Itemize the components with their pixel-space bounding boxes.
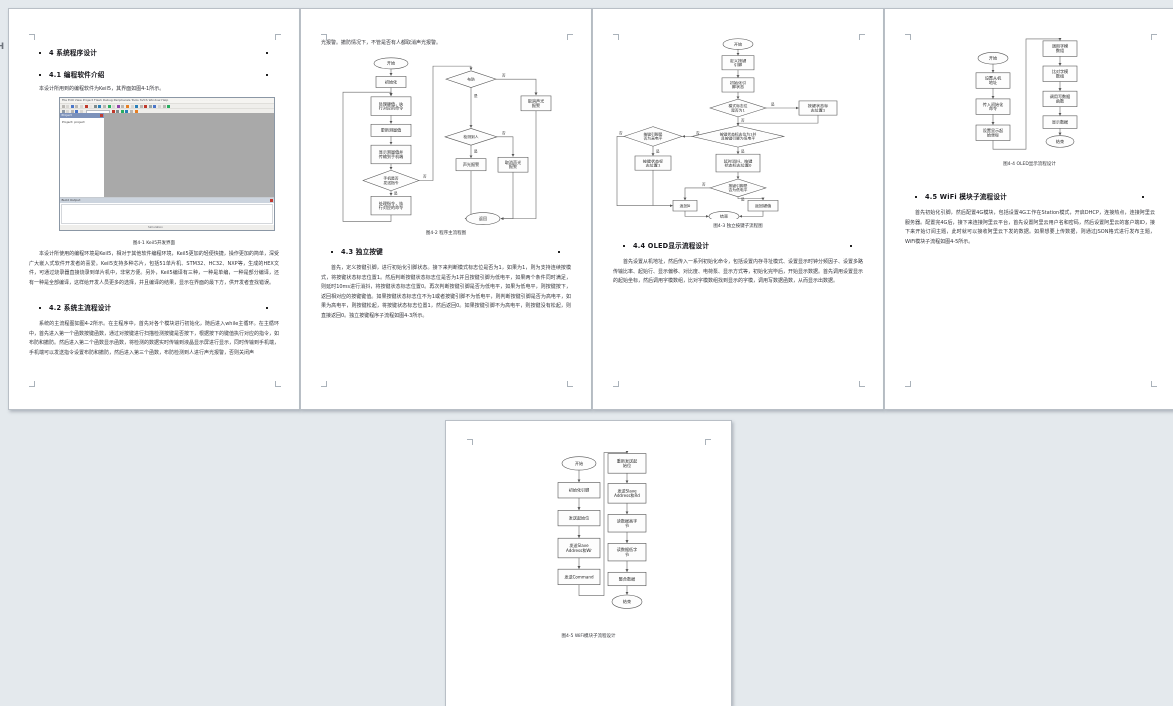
paragraph[interactable]: 首先，定义按键引脚，进行初始化引脚状态。接下来判断模式标志位是否为1，如果为1，… <box>321 264 571 342</box>
paragraph[interactable]: 首先初始化引脚，然后配置4G模块，包括设置4G工作在Station模式，开启DH… <box>905 209 1155 259</box>
format-mark <box>850 245 852 247</box>
format-mark <box>1142 196 1144 198</box>
fc-node-label: 手机是否 <box>383 176 399 181</box>
figure-caption-4-1: 图4-1 Keil5开发界面 <box>9 240 299 246</box>
format-mark <box>266 307 268 309</box>
fc-edge-label: 否 <box>741 119 745 123</box>
fc-node-label: 否为高电平 <box>644 136 663 141</box>
keil-project-tree-item: Project: project <box>60 118 104 124</box>
paragraph[interactable]: 系统的主流程图如图4-2所示。在主程序中，首先对各个模块进行初始化，随后进入wh… <box>29 320 279 379</box>
fc-node-label: 行对应的命令 <box>379 205 404 210</box>
fc-node-label: 始位 <box>623 462 631 468</box>
fc-node-label: Address和Rd <box>614 492 640 498</box>
fc-node-label: 整合数据 <box>619 575 635 581</box>
figure-caption-4-2: 图4-2 程序主流程图 <box>301 230 591 236</box>
format-mark <box>266 74 268 76</box>
fc-edge-label: 否 <box>502 73 506 77</box>
fc-edge <box>501 172 513 218</box>
figure-caption-4-5: 图4-5 WiFi模块子流程设计 <box>446 633 731 639</box>
fc-node-label: 脚状态 <box>732 84 744 89</box>
fc-edge <box>685 211 709 216</box>
fc-node-label: 报警 <box>532 103 540 108</box>
heading-4[interactable]: 4 系统程序设计 <box>49 47 97 57</box>
fc-node-label: 开始 <box>989 55 997 61</box>
fc-edge-label: 是 <box>771 102 775 107</box>
fc-node-label: 开始 <box>734 42 742 47</box>
fc-node-label: 开始 <box>575 460 584 466</box>
figure-wifi-flowchart[interactable]: 开始初始化引脚发送起始位发送SlaveAddress和Wr发送Command重新… <box>539 451 669 611</box>
fc-edge <box>617 136 673 205</box>
close-icon <box>100 114 103 117</box>
page-2: 光报警。撤防情况下，不管是否有人都取消声光报警。 是否是否是否开始初始化处理键值… <box>300 8 592 410</box>
figure-caption-4-4: 图4-4 OLED显示流程设计 <box>885 161 1173 167</box>
fc-edge-label: 否 <box>502 131 506 135</box>
fc-node-label: Address和Wr <box>566 547 592 553</box>
fc-edge <box>738 115 818 123</box>
heading-4-4[interactable]: 4.4 OLED显示流程设计 <box>633 240 709 250</box>
fc-edge-label: 是 <box>474 93 478 98</box>
fc-node-label: 更新测量值 <box>381 128 401 133</box>
fc-edge-label: 否 <box>423 175 427 179</box>
fc-edge <box>465 171 471 219</box>
flowchart-svg: 是否否是是否是否开始定义按键引脚初始化引脚状态模式标志位是否为1按键状态标志位置… <box>613 37 863 219</box>
fc-node-label: 且按键引脚为低电平 <box>721 136 756 141</box>
heading-4-3[interactable]: 4.3 独立按键 <box>341 246 383 256</box>
fc-node-label: 初始化 <box>385 79 397 84</box>
fc-node-label: 始坐标 <box>987 131 999 137</box>
figure-main-flowchart[interactable]: 是否是否是否开始初始化处理键值，执行对应的命令更新测量值显示测量值并传输到手机端… <box>321 55 571 227</box>
keil-project-title: Project <box>62 113 72 117</box>
fc-node-label: 发送指令 <box>383 180 399 185</box>
keil-editor-area <box>104 113 274 198</box>
fc-node-label: 命令 <box>989 105 997 111</box>
keil-ide-screenshot[interactable]: File Edit View Project Flash Debug Perip… <box>59 97 275 231</box>
page-3: 是否否是是否是否开始定义按键引脚初始化引脚状态模式标志位是否为1按键状态标志位置… <box>592 8 884 410</box>
fc-node-label: 按键引脚是 <box>729 183 748 188</box>
fc-node-label: 发送Command <box>564 573 594 579</box>
fc-node-label: 模式标志位 <box>729 103 748 108</box>
fc-node-label: 行对应的命令 <box>379 106 404 111</box>
flowchart-svg: 开始设置从机地址传入初始化命令设置显示起始坐标调用字模数组比对字模数组调用写数据… <box>945 37 1115 155</box>
fc-edge-label: 否 <box>619 131 623 135</box>
format-mark <box>915 196 917 198</box>
fc-node-label: 声光报警 <box>463 162 479 167</box>
fc-edge-label: 是 <box>474 149 478 154</box>
clipped-style-label: H1 <box>0 42 4 54</box>
format-mark <box>558 251 560 253</box>
fc-edge-label: 否 <box>702 182 706 186</box>
paragraph[interactable]: 本设计所用到的编程软件为Keil5，其界面如图4-1所示。 <box>29 85 279 96</box>
fc-edge <box>740 211 764 216</box>
fc-node-label: 是否为1 <box>731 108 745 113</box>
heading-4-2[interactable]: 4.2 系统主流程设计 <box>49 302 111 312</box>
fc-node-label: 返回 <box>479 216 487 221</box>
format-mark <box>39 307 41 309</box>
fc-node-label: 布防 <box>467 77 475 82</box>
fc-edge <box>496 79 536 95</box>
figure-caption-4-3: 图4-3 独立按键子流程图 <box>593 223 883 229</box>
figure-key-flowchart[interactable]: 是否否是是否是否开始定义按键引脚初始化引脚状态模式标志位是否为1按键状态标志位置… <box>613 37 863 219</box>
document-canvas: { "canvas": {"bg": "#e4e9ed", "page_bg":… <box>0 0 1173 705</box>
fc-node-label: 结束 <box>1056 138 1064 144</box>
heading-4-1[interactable]: 4.1 编程软件介绍 <box>49 69 105 79</box>
page-1: 4 系统程序设计 4.1 编程软件介绍 本设计所用到的编程软件为Keil5，其界… <box>8 8 300 410</box>
paragraph[interactable]: 光报警。撤防情况下，不管是否有人都取消声光报警。 <box>321 39 571 50</box>
close-icon <box>270 199 273 202</box>
keil-project-panel: Project Project: project <box>60 113 105 198</box>
figure-oled-flowchart[interactable]: 开始设置从机地址传入初始化命令设置显示起始坐标调用字模数组比对字模数组调用写数据… <box>945 37 1115 155</box>
fc-node-label: 数组 <box>1056 47 1064 53</box>
fc-node-label: 节 <box>625 523 629 528</box>
format-mark <box>39 52 41 54</box>
fc-node-label: 状态标志位置0 <box>724 163 752 168</box>
keil-build-output-panel: Build Output <box>60 197 274 225</box>
flowchart-svg: 是否是否是否开始初始化处理键值，执行对应的命令更新测量值显示测量值并传输到手机端… <box>321 55 571 227</box>
page-5: 开始初始化引脚发送起始位发送SlaveAddress和Wr发送Command重新… <box>445 420 732 706</box>
fc-node-label: 志位置1 <box>811 108 826 113</box>
fc-edge-label: 否 <box>696 131 700 135</box>
fc-edge <box>685 188 710 200</box>
fc-node-label: 数组 <box>1056 72 1064 78</box>
fc-node-label: 初始化引脚 <box>569 487 589 493</box>
keil-status-bar: Simulation <box>60 225 274 230</box>
fc-edge <box>497 137 513 157</box>
paragraph[interactable]: 本设计所使用的编程环境是Keil5，相对于其他软件编程环境，Keil5更加的轻便… <box>29 250 279 298</box>
fc-node-label: 节 <box>625 552 629 557</box>
format-mark <box>266 52 268 54</box>
fc-node-label: 开始 <box>387 61 395 66</box>
fc-node-label: 显示数据 <box>1052 119 1068 125</box>
fc-node-label: 否为低电平 <box>729 187 748 192</box>
format-mark <box>39 74 41 76</box>
fc-edge-label: 是 <box>741 149 745 154</box>
keil-output-title: Build Output <box>62 198 81 202</box>
fc-node-label: 检测到人 <box>463 134 479 139</box>
fc-node-label: 引脚 <box>734 62 742 67</box>
fc-node-label: 志位置1 <box>646 163 661 168</box>
fc-node-label: 按键引脚是 <box>644 132 663 137</box>
flowchart-svg: 开始初始化引脚发送起始位发送SlaveAddress和Wr发送Command重新… <box>539 451 669 611</box>
format-mark <box>331 251 333 253</box>
fc-edge-label: 是 <box>741 197 745 202</box>
fc-node-label: 按键状态标志位为1并 <box>720 132 757 137</box>
fc-node-label: 传输到手机端 <box>379 154 404 159</box>
fc-node-label: 返回键值 <box>755 203 771 208</box>
format-mark <box>623 245 625 247</box>
fc-node-label: 结束 <box>720 214 728 219</box>
fc-node-label: 发送起始位 <box>569 514 589 520</box>
fc-node-label: 结束 <box>623 598 631 604</box>
fc-edge-label: 是 <box>394 191 398 196</box>
page-4: 开始设置从机地址传入初始化命令设置显示起始坐标调用字模数组比对字模数组调用写数据… <box>884 8 1173 410</box>
heading-4-5[interactable]: 4.5 WiFi 模块子流程设计 <box>925 191 1007 201</box>
paragraph[interactable]: 首先设置从机地址，然后传入一系列初始化命令，包括设置内存寻址模式、设置显示时钟分… <box>613 258 863 298</box>
fc-node-label: 函数 <box>1056 98 1064 104</box>
fc-node-label: 地址 <box>989 79 997 85</box>
fc-node-label: 返回0 <box>680 203 691 208</box>
fc-node-label: 报警 <box>509 164 517 169</box>
fc-edge-label: 是 <box>656 149 660 154</box>
